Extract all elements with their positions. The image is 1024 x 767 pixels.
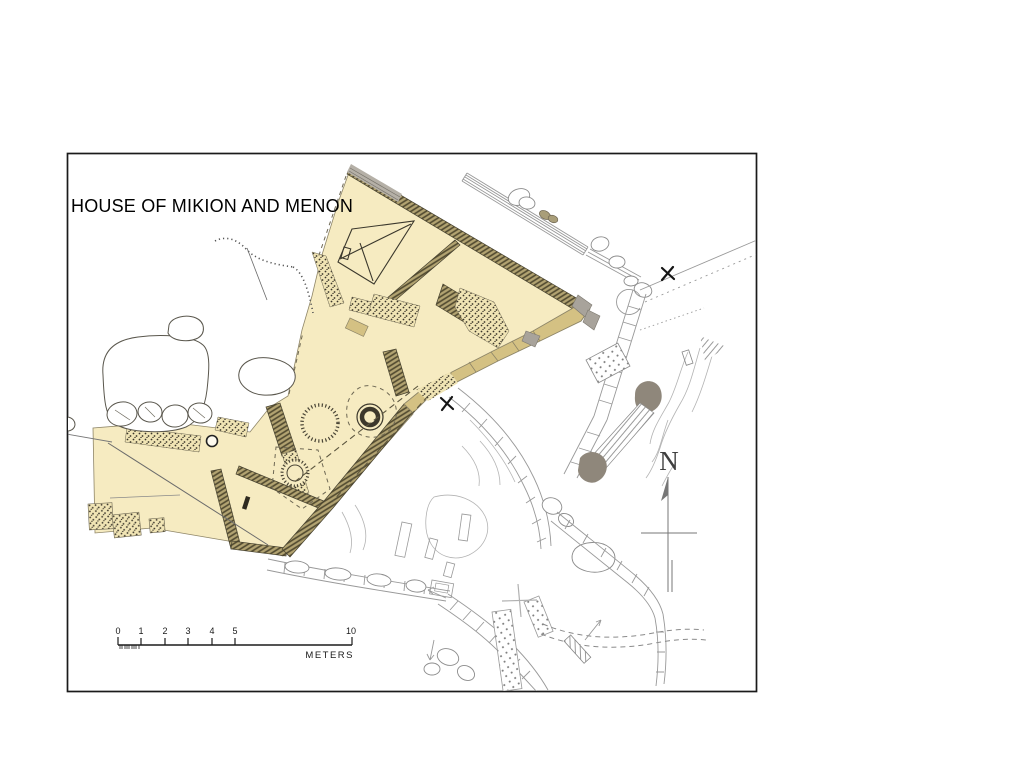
scale-tick-0: 0 <box>115 626 120 636</box>
scale-tick-5: 5 <box>232 626 237 636</box>
scale-tick-2: 2 <box>162 626 167 636</box>
scale-tick-4: 4 <box>209 626 214 636</box>
bedrock-outcrop-small <box>168 316 203 340</box>
scale-unit-label: METERS <box>305 650 354 661</box>
archaeological-plan-page: N 0 1 2 3 4 5 10 METERS HOUSE OF MIKION … <box>0 0 1024 767</box>
scale-tick-1: 1 <box>138 626 143 636</box>
north-label: N <box>659 446 679 476</box>
bedrock-outcrop-mid <box>239 358 295 395</box>
plan-title: HOUSE OF MIKION AND MENON <box>71 196 353 216</box>
posthole-circle <box>207 436 218 447</box>
site-plan-figure: N 0 1 2 3 4 5 10 METERS HOUSE OF MIKION … <box>0 0 1024 767</box>
scale-tick-3: 3 <box>185 626 190 636</box>
scale-tick-10: 10 <box>346 626 356 636</box>
well-south <box>282 460 308 486</box>
